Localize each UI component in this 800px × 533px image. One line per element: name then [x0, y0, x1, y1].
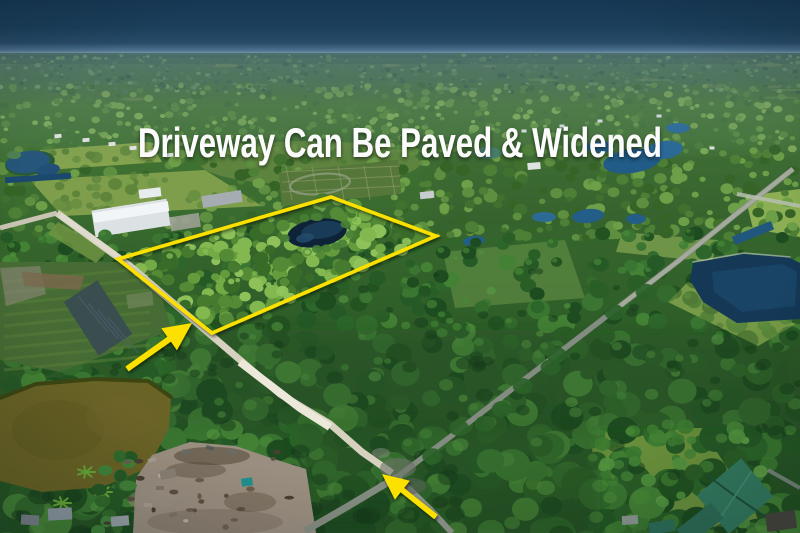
svg-text:Driveway Can Be Paved & Widene: Driveway Can Be Paved & Widened: [138, 119, 662, 166]
